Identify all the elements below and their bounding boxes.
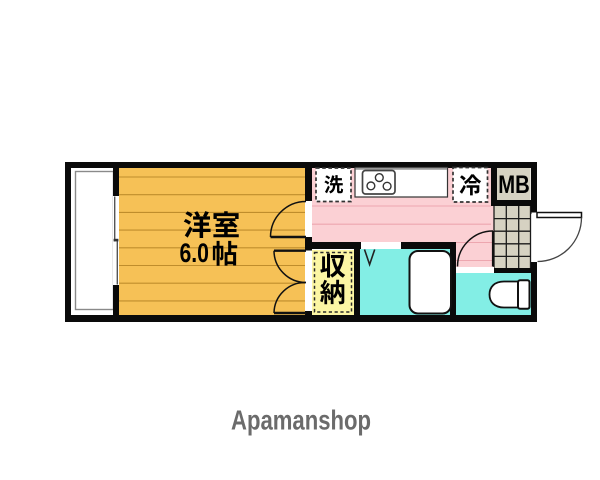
svg-text:6.0: 6.0 bbox=[179, 238, 209, 268]
svg-text:Apamanshop: Apamanshop bbox=[231, 405, 371, 436]
svg-text:MB: MB bbox=[498, 171, 530, 199]
